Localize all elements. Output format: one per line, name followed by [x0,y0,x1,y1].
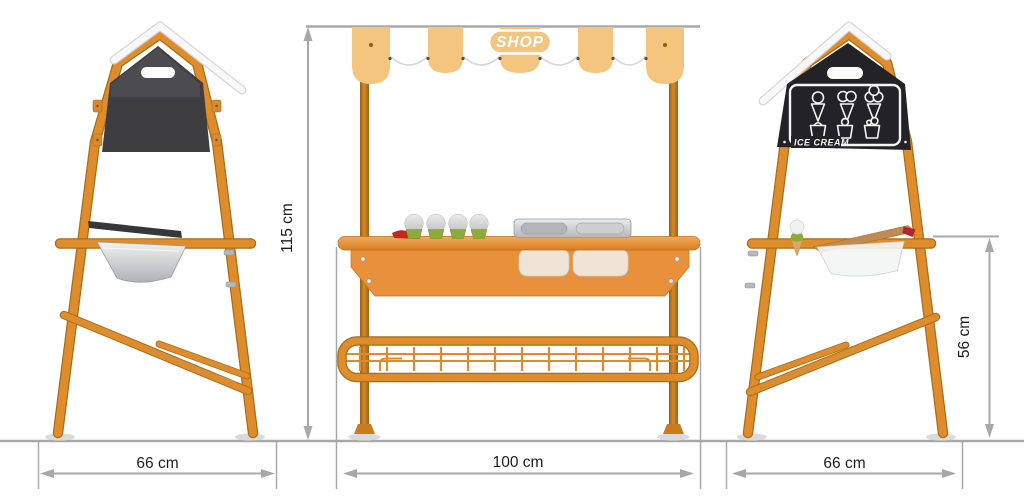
right-foot [663,424,684,434]
shelf-rail [758,345,855,383]
handle-cutout [141,67,175,78]
shop-sign: SHOP [489,31,551,54]
awning-end-cap [646,27,684,84]
dimension-overall-height [304,27,313,440]
shop-sign-label: SHOP [496,34,544,51]
shelf-rail [150,344,247,382]
awning-end-cap [352,27,390,84]
left-foot [354,424,375,434]
counter-height-label: 56 cm [956,316,973,358]
counter-assembly [338,237,700,297]
chalkboard-dot [904,141,907,144]
diagram-canvas: SHOP [0,0,1024,502]
left-width-label: 66 cm [136,455,178,472]
counter-toys [392,214,631,239]
foot-plate [658,434,690,441]
toy-cupcake [470,214,489,238]
front-view: SHOP [338,27,700,441]
front-width-label: 100 cm [493,454,544,471]
toy-cupcake [427,214,446,238]
awning-panel-tan [578,27,613,73]
right-width-label: 66 cm [823,455,865,472]
side-view-right: ICE CREAM [737,26,956,441]
toy-ice-cream-cone [790,220,804,256]
plastic-basin [817,242,904,277]
overall-height-label: 115 cm [279,203,296,253]
hanging-basin [573,249,628,276]
awning-screw [663,43,667,47]
awning-screw [369,43,373,47]
toy-cupcake [449,214,468,238]
foot-plate [349,434,381,441]
toy-cupcake [405,214,424,238]
mounting-clips [745,251,758,288]
dimension-diagram: SHOP [0,0,1024,502]
awning: SHOP [352,27,684,84]
countertop [338,237,700,251]
wire-basket-shelf [342,341,694,378]
hanging-basin [519,249,569,276]
counter-edge-board [88,221,182,238]
chalkboard-title: ICE CREAM [794,138,849,148]
awning-panel-tan [428,27,463,73]
chalkboard-dot [783,141,786,144]
handle-cutout [827,67,863,79]
side-view-left [45,26,265,441]
metal-tray [514,219,631,238]
